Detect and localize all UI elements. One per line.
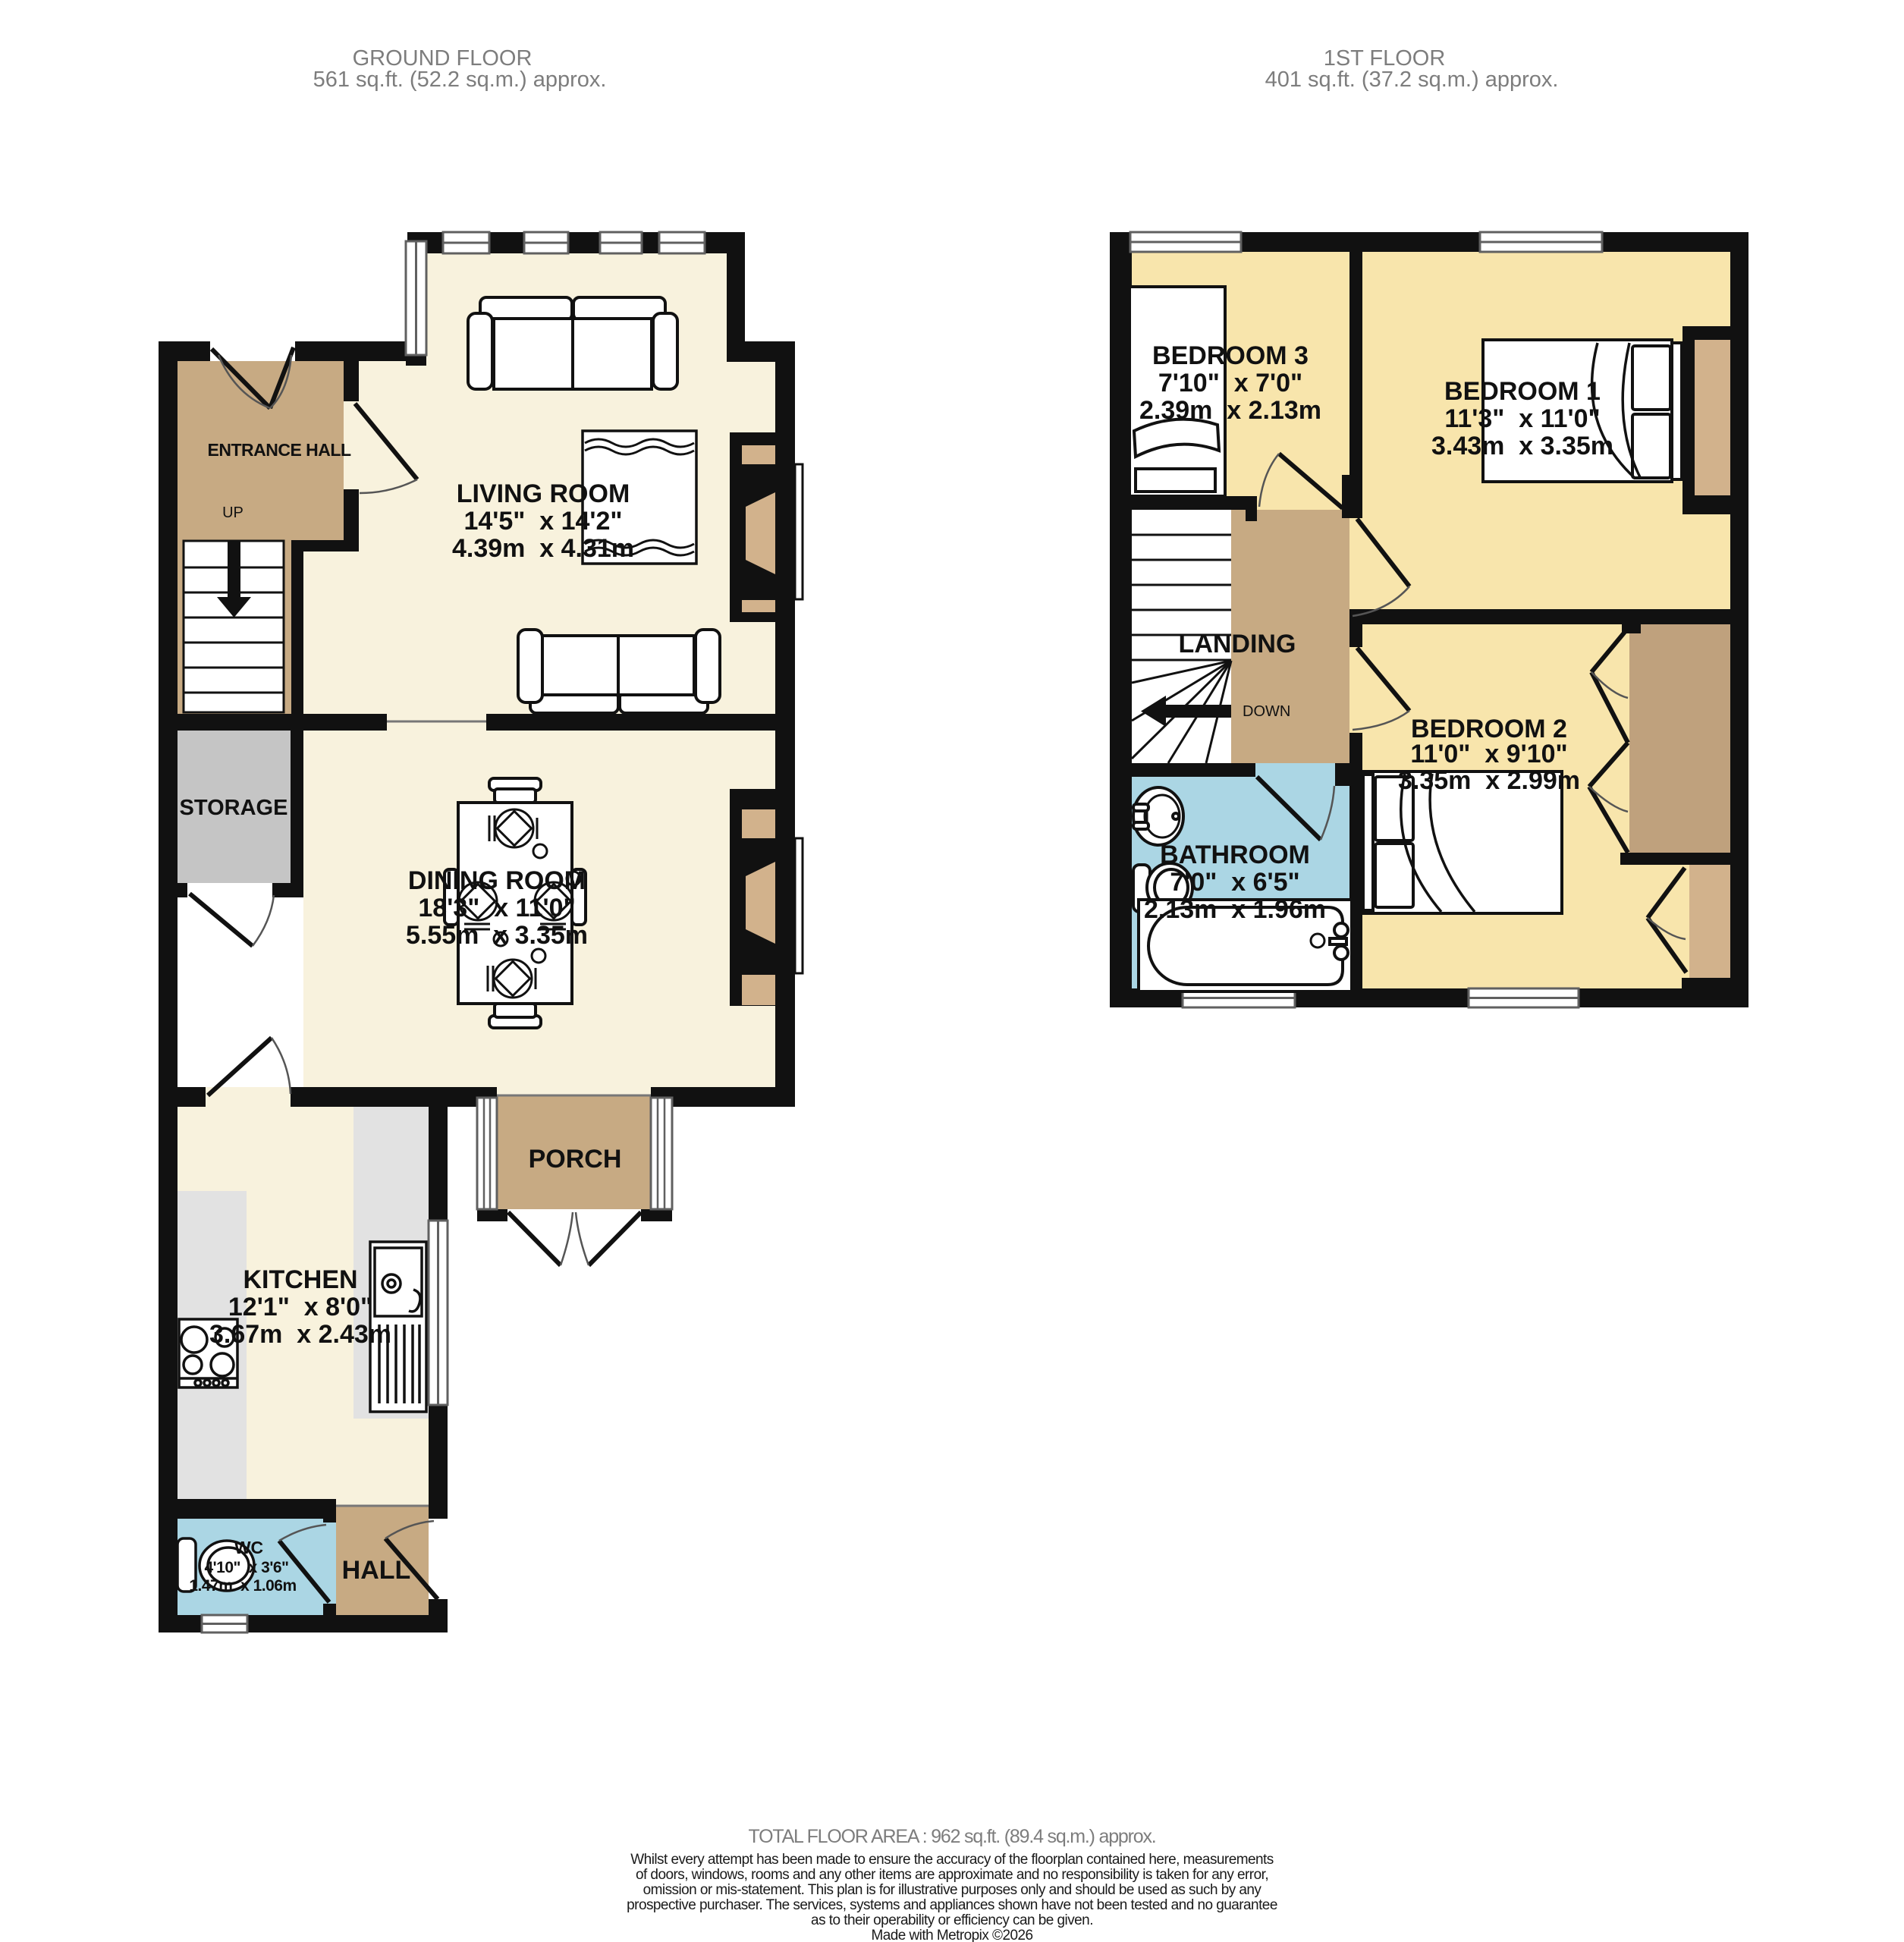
svg-text:2.13m x 1.96m: 2.13m x 1.96m [1144, 895, 1326, 924]
svg-text:401 sq.ft. (37.2 sq.m.) approx: 401 sq.ft. (37.2 sq.m.) approx. [1265, 68, 1559, 92]
svg-text:Made with Metropix ©2026: Made with Metropix ©2026 [871, 1928, 1032, 1942]
svg-text:5.55m x 3.35m: 5.55m x 3.35m [406, 921, 588, 950]
svg-text:of doors, windows, rooms and a: of doors, windows, rooms and any other i… [636, 1867, 1268, 1883]
svg-text:11'0" x 9'10": 11'0" x 9'10" [1410, 740, 1567, 768]
svg-text:18'3" x 11'0": 18'3" x 11'0" [418, 894, 575, 922]
svg-text:DOWN: DOWN [1243, 703, 1290, 720]
svg-text:TOTAL FLOOR AREA : 962 sq.ft.: TOTAL FLOOR AREA : 962 sq.ft. (89.4 sq.m… [749, 1826, 1156, 1847]
svg-text:as to their operability or eff: as to their operability or efficiency ca… [811, 1912, 1093, 1928]
svg-text:BEDROOM 3: BEDROOM 3 [1152, 341, 1309, 370]
svg-text:14'5" x 14'2": 14'5" x 14'2" [463, 507, 622, 536]
svg-text:3.43m x 3.35m: 3.43m x 3.35m [1431, 432, 1613, 460]
svg-text:4.39m x 4.31m: 4.39m x 4.31m [452, 534, 634, 563]
svg-text:1.47m x 1.06m: 1.47m x 1.06m [189, 1577, 296, 1595]
svg-text:STORAGE: STORAGE [180, 796, 288, 820]
svg-text:2.39m x 2.13m: 2.39m x 2.13m [1139, 396, 1321, 425]
svg-text:BEDROOM 1: BEDROOM 1 [1444, 377, 1601, 406]
svg-text:ENTRANCE HALL: ENTRANCE HALL [208, 440, 351, 460]
svg-text:omission or mis-statement. Thi: omission or mis-statement. This plan is … [643, 1882, 1262, 1898]
svg-text:4'10" x 3'6": 4'10" x 3'6" [205, 1559, 289, 1576]
svg-text:7'10" x 7'0": 7'10" x 7'0" [1158, 369, 1302, 398]
svg-text:11'3" x 11'0": 11'3" x 11'0" [1444, 404, 1600, 433]
svg-text:LIVING ROOM: LIVING ROOM [457, 479, 630, 508]
svg-text:Whilst every attempt has been: Whilst every attempt has been made to en… [630, 1852, 1273, 1868]
svg-text:WC: WC [234, 1538, 263, 1557]
svg-text:3.67m x 2.43m: 3.67m x 2.43m [209, 1320, 391, 1349]
svg-text:DINING ROOM: DINING ROOM [408, 866, 586, 895]
svg-text:LANDING: LANDING [1179, 630, 1296, 658]
svg-text:561 sq.ft. (52.2 sq.m.) approx: 561 sq.ft. (52.2 sq.m.) approx. [313, 68, 607, 92]
svg-text:prospective purchaser. The ser: prospective purchaser. The services, sys… [627, 1897, 1277, 1913]
svg-text:PORCH: PORCH [529, 1145, 622, 1174]
svg-text:12'1" x 8'0": 12'1" x 8'0" [228, 1293, 372, 1321]
svg-text:3.35m x 2.99m: 3.35m x 2.99m [1398, 766, 1580, 795]
svg-text:UP: UP [222, 504, 243, 521]
svg-text:HALL: HALL [342, 1556, 411, 1585]
svg-text:KITCHEN: KITCHEN [243, 1265, 357, 1294]
svg-text:BATHROOM: BATHROOM [1160, 841, 1310, 869]
svg-text:7'0" x 6'5": 7'0" x 6'5" [1170, 868, 1299, 897]
